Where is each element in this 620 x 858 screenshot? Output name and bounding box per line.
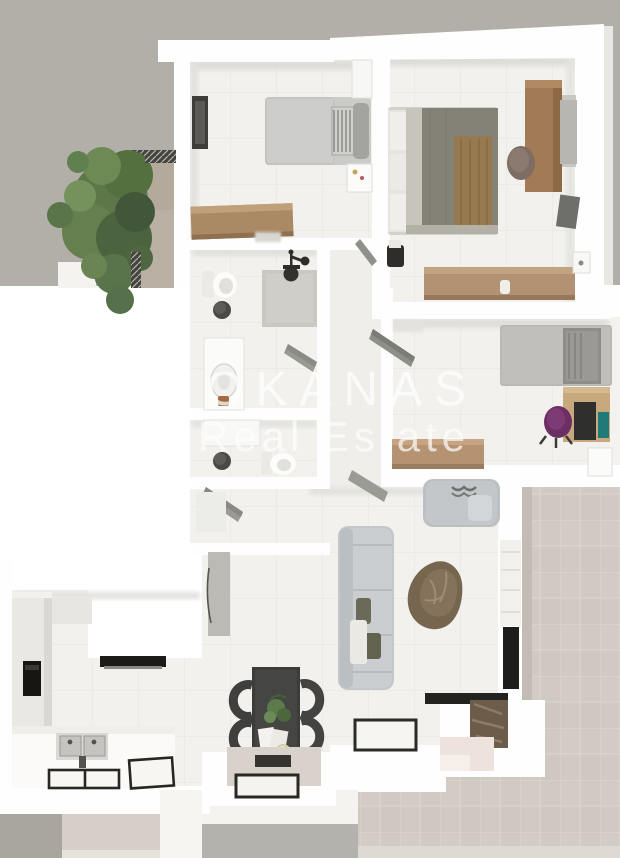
svg-text:Real Estate: Real Estate — [198, 413, 470, 460]
svg-text:OKANAS: OKANAS — [206, 363, 478, 416]
